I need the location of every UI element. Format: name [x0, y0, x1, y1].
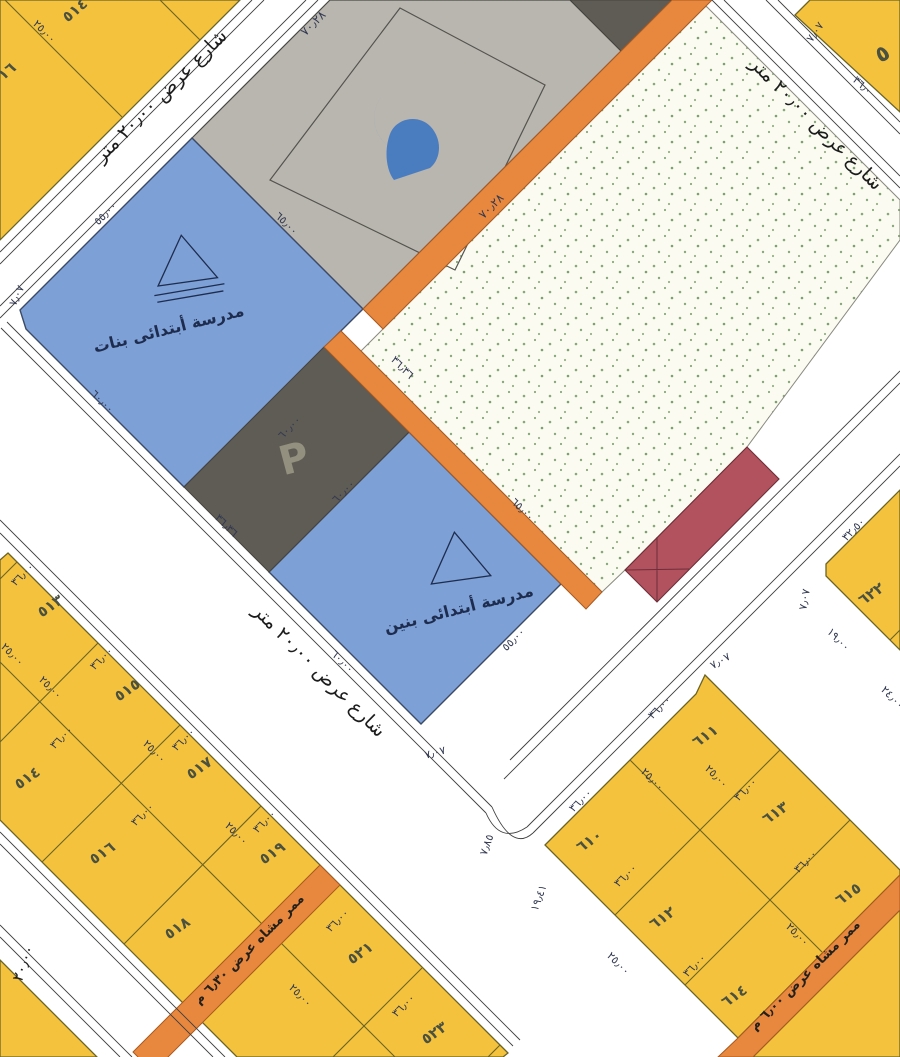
- subdivision-plan-map: شارع عرض ٢٠٫٠٠ متر شارع عرض ٢٠٫٠٠ متر شا…: [0, 0, 900, 1057]
- plan-canvas: شارع عرض ٢٠٫٠٠ متر شارع عرض ٢٠٫٠٠ متر شا…: [0, 0, 900, 1057]
